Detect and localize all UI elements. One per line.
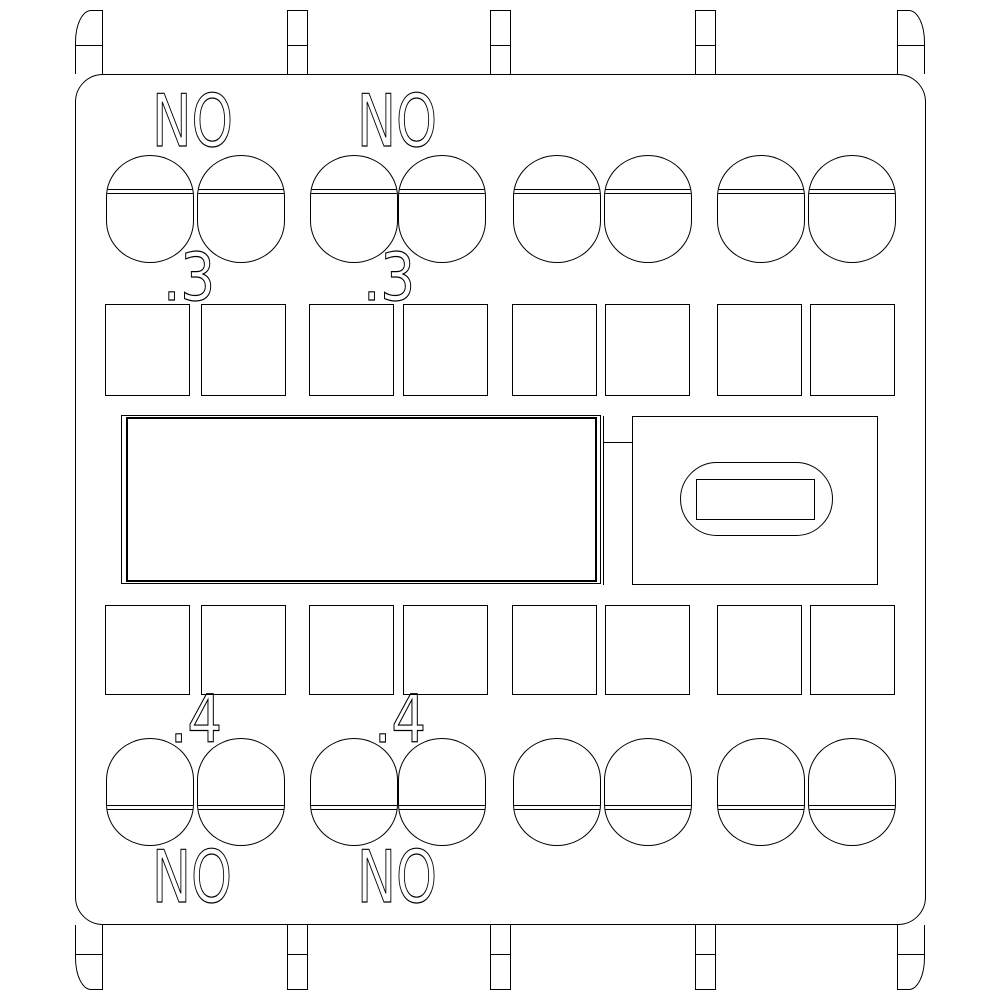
mounting-tab-top-4 <box>695 10 716 74</box>
mounting-tab-bottom-5 <box>897 925 925 990</box>
screw-terminal-top-3 <box>310 155 398 263</box>
wire-entry-top-5 <box>512 304 597 396</box>
wire-entry-top-4 <box>403 304 488 396</box>
mounting-tab-top-2 <box>287 10 308 74</box>
mounting-tab-top-3 <box>490 10 511 74</box>
tab-tick-line <box>897 954 925 955</box>
screw-terminal-top-1 <box>106 155 194 263</box>
tab-tick-line <box>490 45 511 46</box>
tab-tick-line <box>897 45 925 46</box>
screw-slot <box>398 189 486 194</box>
screw-slot <box>106 189 194 194</box>
mounting-tab-bottom-3 <box>490 925 511 990</box>
wire-entry-top-6 <box>605 304 690 396</box>
screw-slot <box>717 805 805 810</box>
wire-entry-top-3 <box>309 304 394 396</box>
tab-tick-line <box>75 45 103 46</box>
screw-slot <box>398 805 486 810</box>
label-window-step-line <box>604 442 632 443</box>
mounting-tab-bottom-1 <box>75 925 103 990</box>
wire-entry-bottom-1 <box>105 605 190 695</box>
wire-entry-bottom-7 <box>717 605 802 695</box>
mounting-tab-bottom-4 <box>695 925 716 990</box>
screw-slot <box>106 805 194 810</box>
screw-terminal-bottom-1 <box>106 738 194 846</box>
screw-terminal-top-8 <box>808 155 896 263</box>
screw-terminal-bottom-7 <box>717 738 805 846</box>
screw-terminal-top-2 <box>197 155 285 263</box>
screw-slot <box>604 189 692 194</box>
mounting-tab-bottom-2 <box>287 925 308 990</box>
screw-terminal-bottom-6 <box>604 738 692 846</box>
screw-terminal-bottom-3 <box>310 738 398 846</box>
wire-entry-top-2 <box>201 304 286 396</box>
wire-entry-bottom-4 <box>403 605 488 695</box>
tab-tick-line <box>75 954 103 955</box>
screw-terminal-top-4 <box>398 155 486 263</box>
mounting-tab-top-1 <box>75 10 103 74</box>
screw-slot <box>513 805 601 810</box>
wire-entry-top-1 <box>105 304 190 396</box>
screw-terminal-top-5 <box>513 155 601 263</box>
auxiliary-contact-block-drawing: NO NO .3 .3 .4 .4 NO NO <box>0 0 1000 1000</box>
screw-terminal-bottom-5 <box>513 738 601 846</box>
screw-slot <box>808 189 896 194</box>
screw-slot <box>197 805 285 810</box>
tab-tick-line <box>695 954 716 955</box>
screw-slot <box>197 189 285 194</box>
wire-entry-bottom-3 <box>309 605 394 695</box>
mounting-tab-top-5 <box>897 10 925 74</box>
tab-tick-line <box>490 954 511 955</box>
tab-tick-line <box>695 45 716 46</box>
screw-terminal-top-7 <box>717 155 805 263</box>
wire-entry-bottom-5 <box>512 605 597 695</box>
screw-slot <box>604 805 692 810</box>
wire-entry-bottom-8 <box>810 605 895 695</box>
screw-slot <box>808 805 896 810</box>
label-window-inner <box>126 417 597 582</box>
wire-entry-bottom-2 <box>201 605 286 695</box>
wire-entry-top-8 <box>810 304 895 396</box>
actuator-slot <box>696 479 815 520</box>
screw-terminal-top-6 <box>604 155 692 263</box>
screw-terminal-bottom-8 <box>808 738 896 846</box>
screw-slot <box>310 189 398 194</box>
tab-tick-line <box>287 45 308 46</box>
wire-entry-bottom-6 <box>605 605 690 695</box>
screw-terminal-bottom-2 <box>197 738 285 846</box>
screw-terminal-bottom-4 <box>398 738 486 846</box>
wire-entry-top-7 <box>717 304 802 396</box>
screw-slot <box>717 189 805 194</box>
screw-slot <box>513 189 601 194</box>
screw-slot <box>310 805 398 810</box>
tab-tick-line <box>287 954 308 955</box>
